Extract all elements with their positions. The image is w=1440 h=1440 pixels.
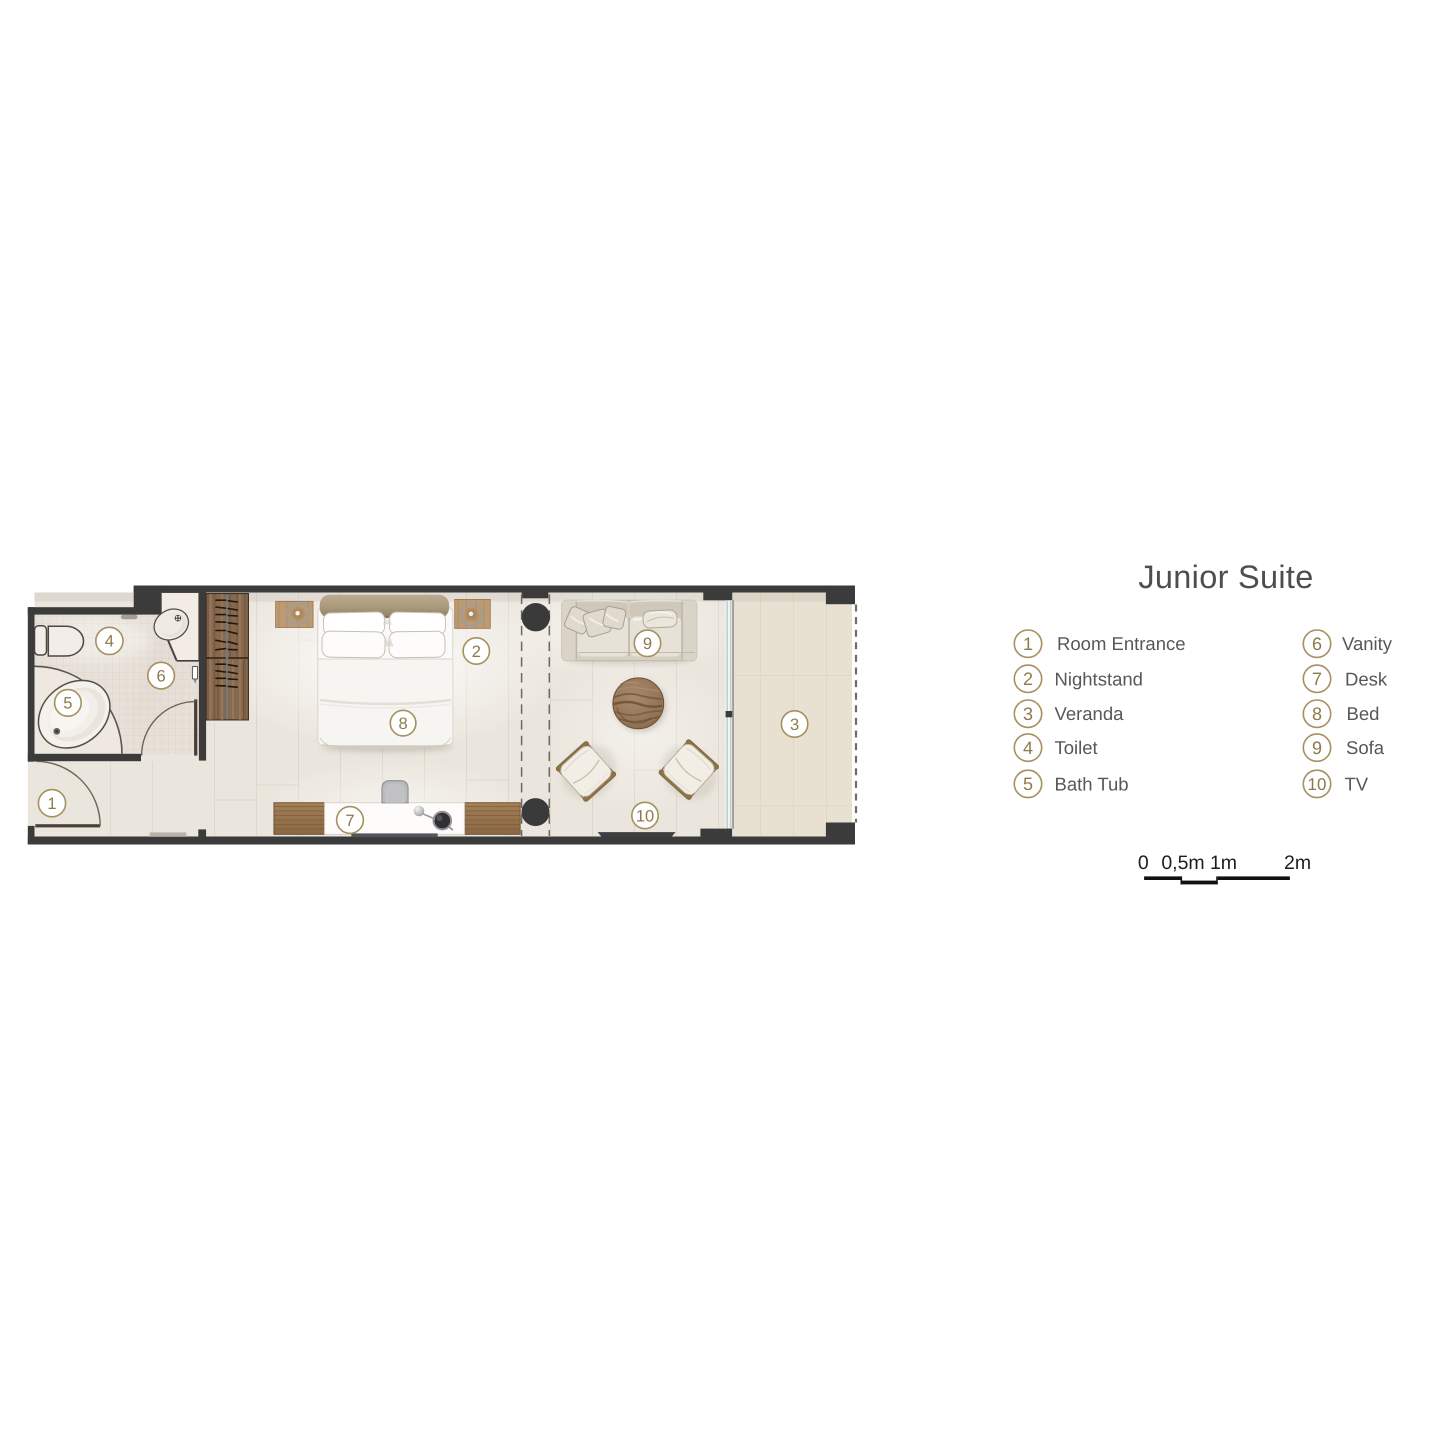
svg-text:Desk: Desk <box>1345 668 1388 689</box>
svg-text:1: 1 <box>47 795 56 813</box>
svg-text:10: 10 <box>636 807 654 825</box>
svg-text:Bath Tub: Bath Tub <box>1055 773 1129 794</box>
svg-text:9: 9 <box>1312 738 1322 758</box>
svg-text:10: 10 <box>1308 775 1327 794</box>
svg-text:TV: TV <box>1345 773 1369 794</box>
svg-text:3: 3 <box>790 716 799 734</box>
svg-text:2m: 2m <box>1284 852 1311 874</box>
svg-text:2: 2 <box>1023 669 1033 689</box>
svg-text:Bed: Bed <box>1347 703 1380 724</box>
svg-text:0,5m: 0,5m <box>1161 852 1204 874</box>
svg-text:9: 9 <box>643 635 652 653</box>
svg-text:Toilet: Toilet <box>1055 737 1098 758</box>
svg-text:Nightstand: Nightstand <box>1055 668 1143 689</box>
svg-text:5: 5 <box>63 695 72 713</box>
svg-text:Junior Suite: Junior Suite <box>1138 559 1313 595</box>
svg-text:Veranda: Veranda <box>1055 703 1125 724</box>
svg-text:8: 8 <box>1312 704 1322 724</box>
svg-text:3: 3 <box>1023 704 1033 724</box>
svg-text:0: 0 <box>1138 852 1149 874</box>
svg-text:Room Entrance: Room Entrance <box>1057 633 1186 654</box>
svg-text:Vanity: Vanity <box>1342 633 1393 654</box>
svg-text:7: 7 <box>1312 669 1322 689</box>
svg-text:4: 4 <box>1023 738 1033 758</box>
svg-text:6: 6 <box>1312 634 1322 654</box>
svg-text:1m: 1m <box>1210 852 1237 874</box>
svg-text:5: 5 <box>1023 774 1033 794</box>
svg-text:7: 7 <box>345 812 354 830</box>
svg-text:Sofa: Sofa <box>1346 737 1385 758</box>
svg-text:8: 8 <box>399 715 408 733</box>
svg-text:4: 4 <box>105 633 114 651</box>
svg-text:2: 2 <box>472 643 481 661</box>
svg-text:1: 1 <box>1023 634 1033 654</box>
svg-text:6: 6 <box>157 667 166 685</box>
